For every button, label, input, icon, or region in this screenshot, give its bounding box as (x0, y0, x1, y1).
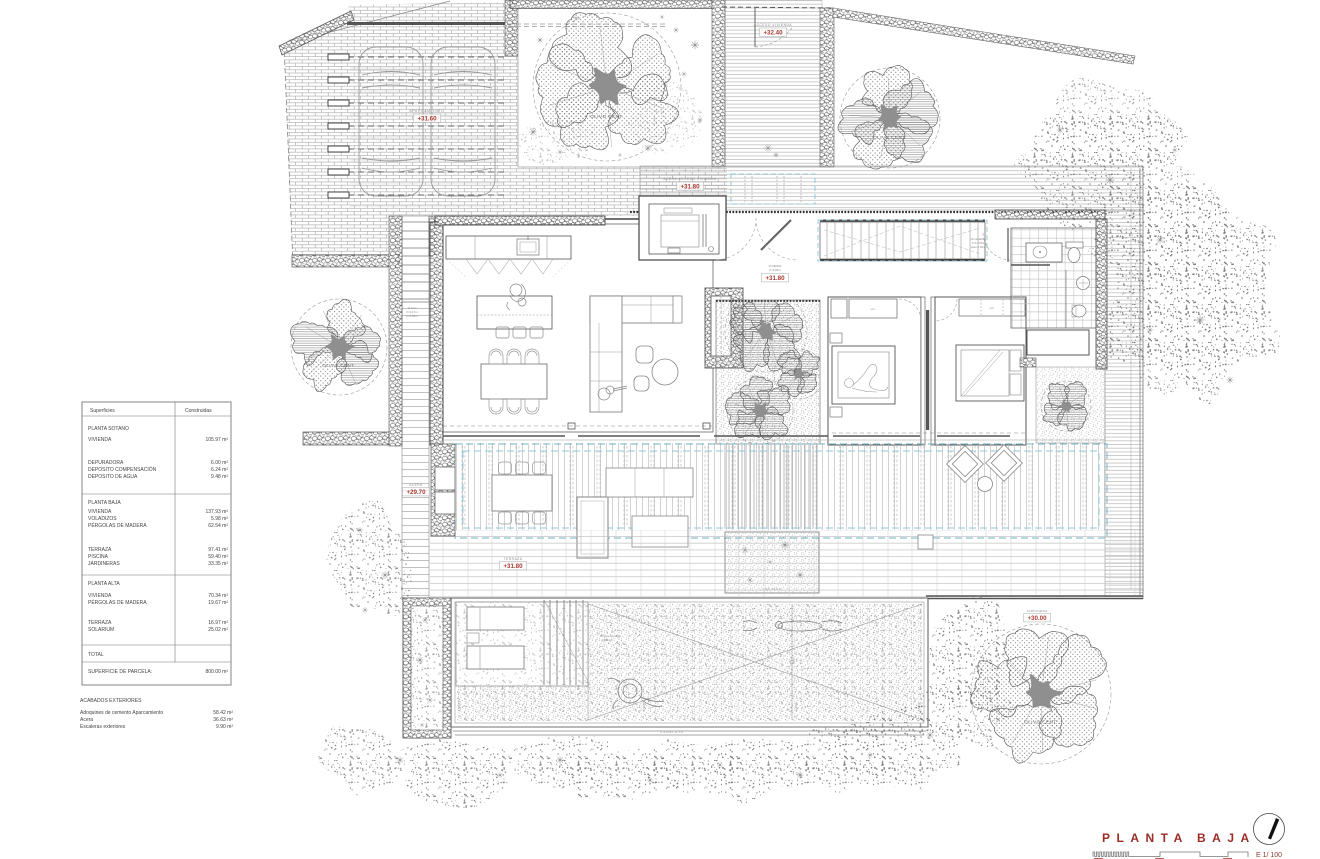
svg-text:VOLADIZOS: VOLADIZOS (88, 516, 117, 522)
svg-text:9.90 m²: 9.90 m² (216, 724, 233, 730)
svg-text:6.00 m²: 6.00 m² (211, 460, 228, 466)
svg-text:25.02 m²: 25.02 m² (208, 627, 228, 633)
svg-text:BAJA: BAJA (1197, 831, 1256, 845)
svg-text:OLIVO CENT.: OLIVO CENT. (322, 363, 356, 368)
svg-text:Construidas: Construidas (185, 408, 212, 414)
svg-text:ACCESO VIVIENDA: ACCESO VIVIENDA (754, 23, 792, 27)
svg-text:+31.80: +31.80 (503, 563, 523, 570)
svg-text:JARDINERA: JARDINERA (1026, 609, 1048, 613)
svg-text:arm.: arm. (989, 306, 994, 310)
svg-text:DEPOSITO DE AGUA: DEPOSITO DE AGUA (88, 474, 138, 480)
svg-text:62.54 m²: 62.54 m² (208, 523, 228, 529)
svg-text:PLANTA ALTA: PLANTA ALTA (88, 581, 120, 587)
svg-text:VIVIENDA: VIVIENDA (88, 437, 112, 443)
svg-text:36.63 m²: 36.63 m² (213, 717, 233, 723)
svg-text:PLANTA: PLANTA (1102, 831, 1189, 845)
svg-text:97.41 m²: 97.41 m² (208, 547, 228, 553)
svg-text:VIVIENDA: VIVIENDA (88, 593, 112, 599)
svg-text:DEPOSITO COMPENSACIÓN: DEPOSITO COMPENSACIÓN (88, 466, 157, 473)
svg-text:+31.80: +31.80 (680, 184, 700, 191)
svg-text:19.67 m²: 19.67 m² (208, 600, 228, 606)
svg-text:Adoquines de cemento Aparcamie: Adoquines de cemento Aparcamiento (80, 710, 163, 716)
svg-text:137.93 m²: 137.93 m² (205, 509, 228, 515)
svg-text:105.97 m²: 105.97 m² (205, 437, 228, 443)
svg-text:-1.30m: -1.30m (642, 702, 646, 712)
svg-text:paso 0.30m: paso 0.30m (971, 245, 986, 249)
svg-text:33.35 m²: 33.35 m² (208, 561, 228, 567)
svg-text:PÉRGOLAS DE MADERA: PÉRGOLAS DE MADERA (88, 599, 147, 606)
svg-text:800.00 m²: 800.00 m² (205, 669, 228, 675)
svg-text:Superficies: Superficies (90, 408, 115, 414)
svg-text:VIVIENDA: VIVIENDA (88, 509, 112, 515)
svg-text:Acera: Acera (80, 717, 93, 723)
svg-text:SUPERFICIE DE PARCELA:: SUPERFICIE DE PARCELA: (88, 669, 152, 675)
svg-text:OLIVO CENT.: OLIVO CENT. (590, 114, 624, 119)
svg-text:PISCINA: PISCINA (88, 554, 109, 560)
svg-text:59.40 m²: 59.40 m² (208, 554, 228, 560)
svg-text:6.24 m²: 6.24 m² (211, 467, 228, 473)
svg-text:ACABADOS EXTERIORES: ACABADOS EXTERIORES (80, 698, 142, 704)
svg-text:16.97 m²: 16.97 m² (208, 620, 228, 626)
svg-text:arm.: arm. (870, 307, 875, 311)
svg-text:+31.80: +31.80 (765, 275, 785, 282)
svg-text:-1.40m: -1.40m (794, 702, 798, 712)
svg-text:+32.40: +32.40 (763, 30, 783, 37)
svg-text:p=0.30m: p=0.30m (407, 314, 419, 318)
svg-text:TERRAZA: TERRAZA (88, 620, 112, 626)
svg-text:APARCAMIENTO: APARCAMIENTO (409, 109, 444, 113)
svg-text:TOTAL: TOTAL (88, 652, 104, 658)
svg-text:ACERA: ACERA (409, 483, 423, 487)
svg-text:CANALETA: CANALETA (660, 730, 684, 734)
svg-text:PÉRGOLAS DE MADERA: PÉRGOLAS DE MADERA (88, 522, 147, 529)
svg-text:-1.20m: -1.20m (457, 702, 461, 712)
svg-text:58.42 m²: 58.42 m² (213, 710, 233, 716)
svg-text:h=3.00m: h=3.00m (770, 268, 782, 272)
svg-text:E 1/ 100: E 1/ 100 (1256, 852, 1282, 859)
svg-text:+31.60: +31.60 (417, 116, 437, 123)
svg-text:TERRAZA: TERRAZA (503, 557, 522, 561)
svg-text:PLANTA BAJA: PLANTA BAJA (88, 500, 121, 506)
svg-text:DEPURADORA: DEPURADORA (88, 460, 124, 466)
svg-text:ACERA ACCESO VIVIENDA: ACERA ACCESO VIVIENDA (663, 177, 717, 181)
svg-text:OLIVO CENT.: OLIVO CENT. (873, 135, 907, 140)
svg-text:9.48 m²: 9.48 m² (211, 474, 228, 480)
svg-text:+29.70: +29.70 (406, 489, 426, 496)
svg-text:JARDINERAS: JARDINERAS (88, 561, 120, 567)
svg-text:70.34 m²: 70.34 m² (208, 593, 228, 599)
svg-text:SOLARIUM: SOLARIUM (88, 627, 114, 633)
svg-text:5.98 m²: 5.98 m² (211, 516, 228, 522)
svg-text:p=25cm: p=25cm (601, 638, 612, 642)
svg-text:TERRAZA: TERRAZA (88, 547, 112, 553)
svg-text:+30.00: +30.00 (1027, 615, 1047, 622)
svg-text:Escaleras exteriores: Escaleras exteriores (80, 724, 126, 730)
svg-text:PLANTA SOTANO: PLANTA SOTANO (88, 426, 129, 432)
svg-text:OLIVO CENT.: OLIVO CENT. (1024, 719, 1058, 724)
